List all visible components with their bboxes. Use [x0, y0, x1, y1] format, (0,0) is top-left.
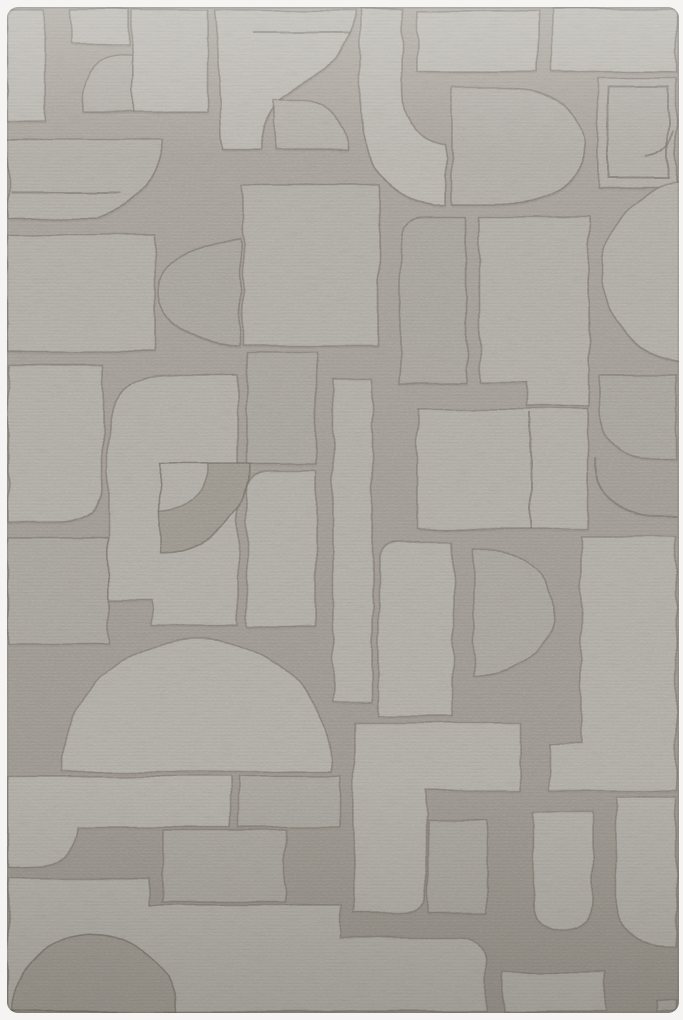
rug-product-photo	[0, 0, 683, 1020]
rug-body	[7, 7, 683, 1013]
photo-stage	[0, 0, 683, 1020]
rug-image	[0, 0, 683, 1020]
bottom-shadow	[7, 780, 679, 1013]
light-sheen	[7, 7, 679, 157]
